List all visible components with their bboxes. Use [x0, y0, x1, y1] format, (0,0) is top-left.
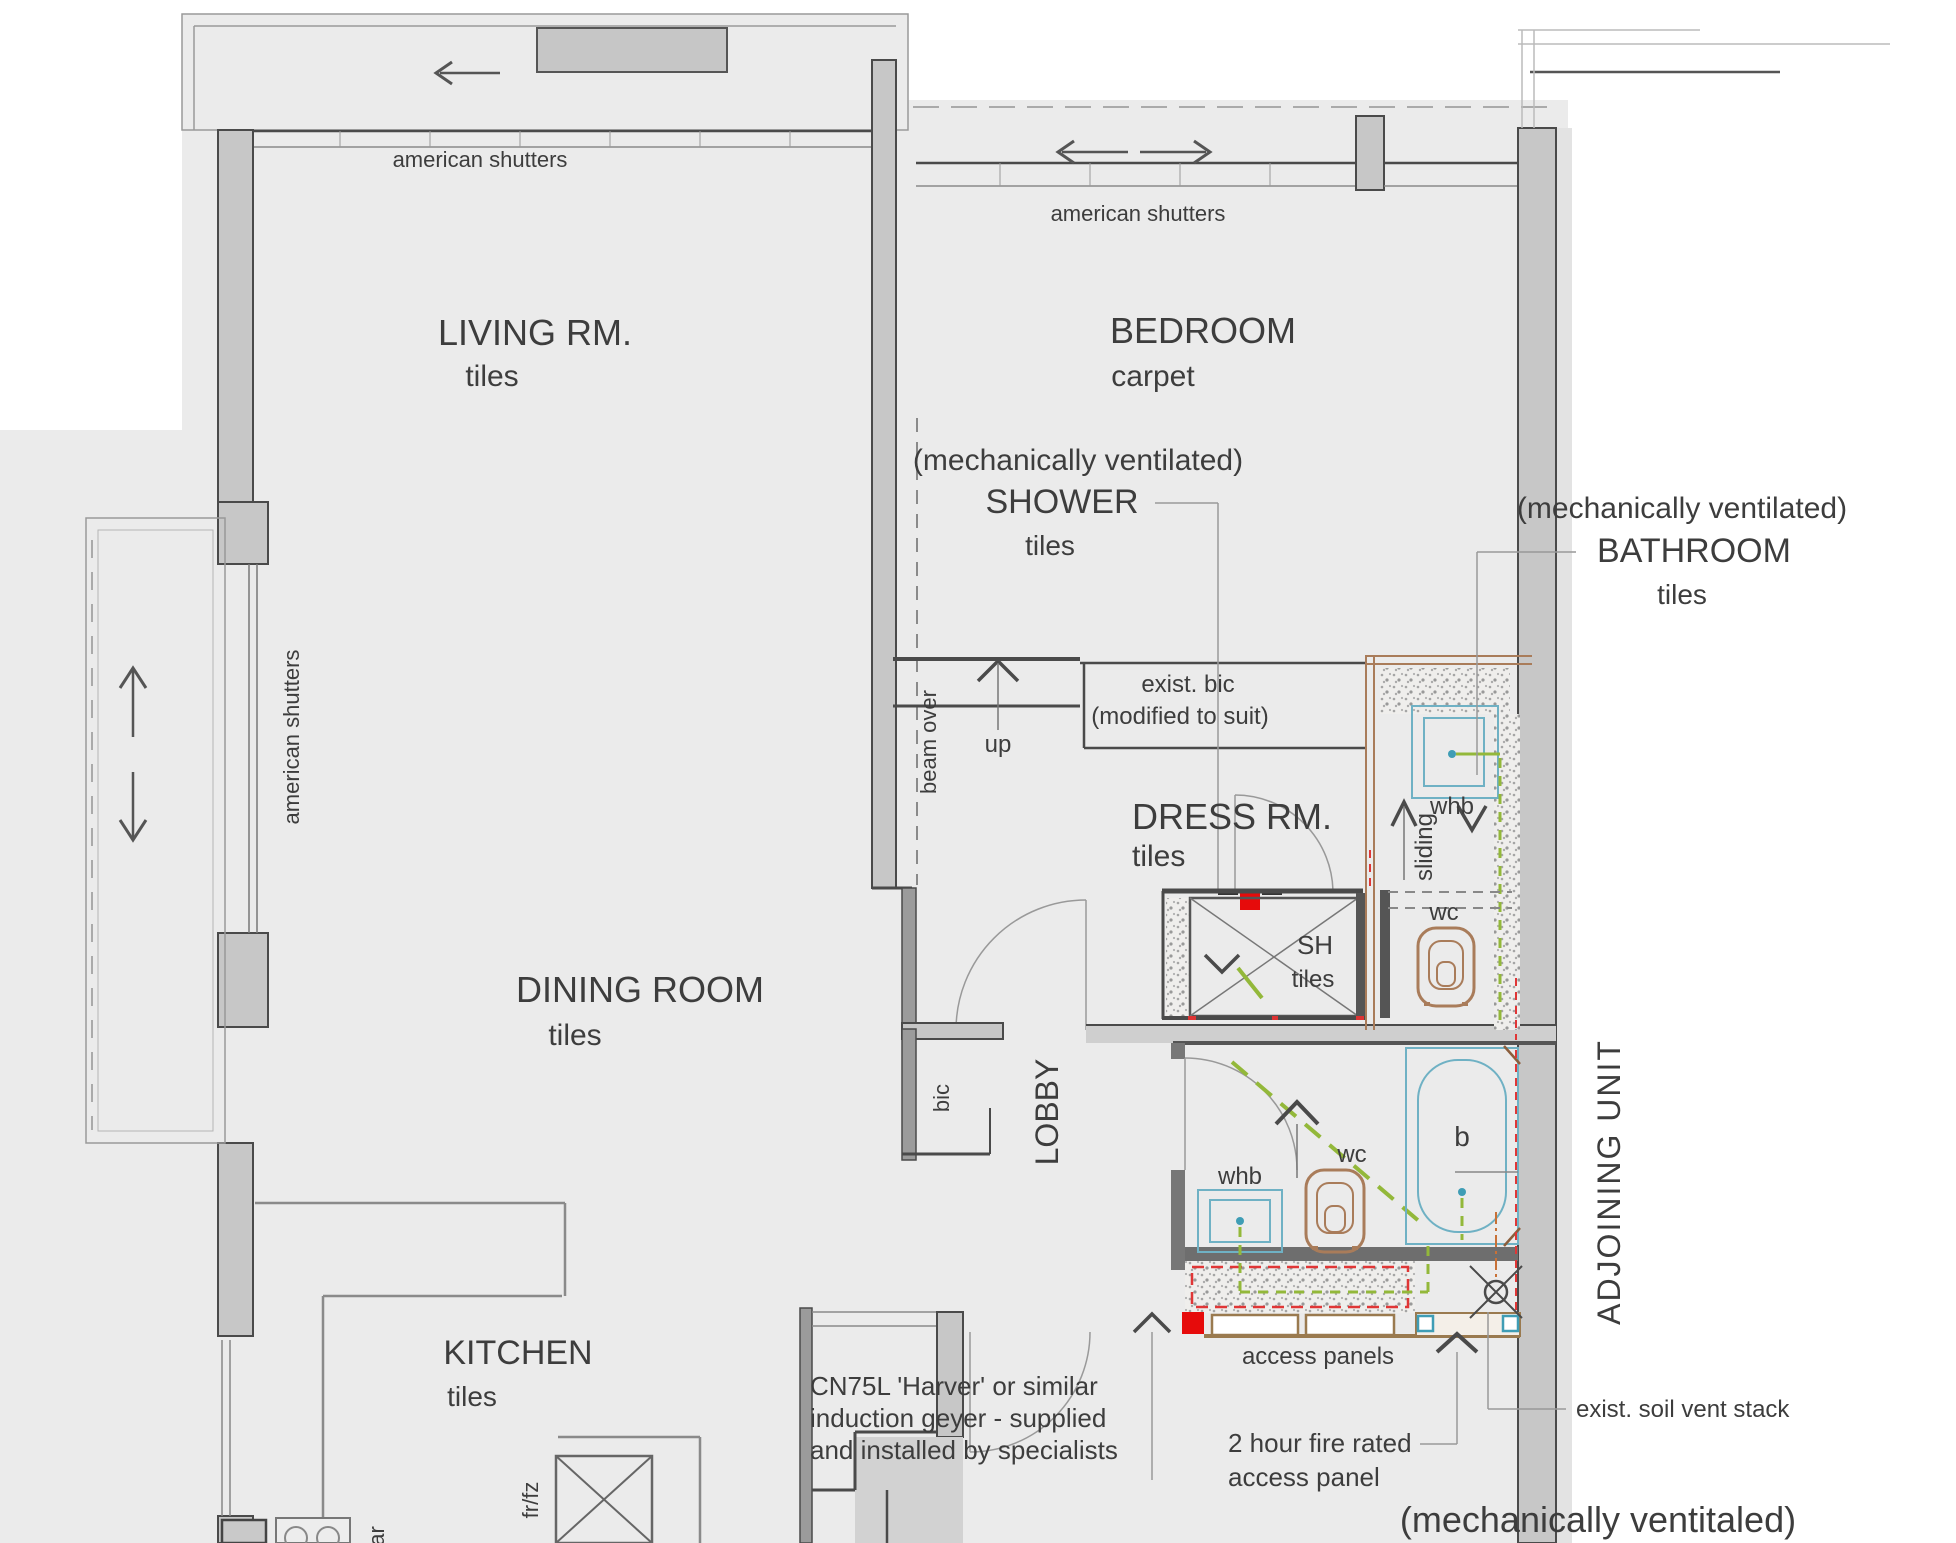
label-dining-room: DINING ROOM — [516, 969, 764, 1010]
label-lobby: LOBBY — [1029, 1059, 1065, 1166]
label-american-shutters-living: american shutters — [393, 147, 568, 172]
label-bath: b — [1454, 1121, 1470, 1152]
door-marker-red — [1182, 1312, 1204, 1334]
label-sh-finish: tiles — [1292, 966, 1335, 993]
label-geyser-2: induction geyer - supplied — [810, 1403, 1106, 1433]
label-dress-room: DRESS RM. — [1132, 796, 1332, 837]
label-whb-bathroom: whb — [1217, 1163, 1262, 1190]
label-dress-finish: tiles — [1132, 840, 1185, 873]
label-american-shutters-bedroom: american shutters — [1051, 201, 1226, 226]
label-bathroom-finish: tiles — [1657, 579, 1707, 610]
label-exist-bic: exist. bic — [1141, 671, 1234, 698]
label-living-finish: tiles — [465, 360, 518, 393]
access-panel — [1212, 1315, 1298, 1335]
label-access-panels: access panels — [1242, 1343, 1394, 1370]
label-shower-finish: tiles — [1025, 530, 1075, 561]
sink-unit — [222, 1520, 266, 1543]
label-kitchen: KITCHEN — [443, 1334, 592, 1372]
label-geyser-3: and installed by specialists — [810, 1435, 1118, 1465]
label-beam-over: beam over — [916, 690, 941, 794]
label-exist-bic-note: (modified to suit) — [1091, 703, 1268, 730]
shutter-panel — [537, 28, 727, 72]
label-bedroom: BEDROOM — [1110, 310, 1296, 351]
label-fridge-freezer: fr/fz — [518, 1482, 543, 1519]
label-soil-vent-stack: exist. soil vent stack — [1576, 1396, 1790, 1423]
floor-plan-page: american shutters LIVING RM. tiles ameri… — [0, 0, 1956, 1543]
label-dining-finish: tiles — [548, 1019, 601, 1052]
label-geyser-1: CN75L 'Harver' or similar — [810, 1371, 1098, 1401]
label-shower-vent-note: (mechanically ventilated) — [913, 444, 1243, 477]
label-fire-rated-2: access panel — [1228, 1462, 1380, 1492]
label-bic: bic — [929, 1084, 954, 1112]
label-living-room: LIVING RM. — [438, 312, 632, 353]
label-fire-rated-1: 2 hour fire rated — [1228, 1428, 1412, 1458]
label-adjoining-unit: ADJOINING UNIT — [1591, 1039, 1627, 1325]
label-stairs-up: up — [985, 731, 1012, 758]
label-mech-vent-bottom: (mechanically ventitaled) — [1400, 1499, 1796, 1540]
label-sliding-door: sliding — [1411, 813, 1438, 881]
floor-plan-drawing: american shutters LIVING RM. tiles ameri… — [0, 0, 1956, 1543]
label-kitchen-finish: tiles — [447, 1381, 497, 1412]
label-wc-bathroom: wc — [1336, 1141, 1366, 1168]
window-pier — [1356, 116, 1384, 190]
label-shower: SHOWER — [986, 483, 1139, 521]
label-bathroom-vent-note: (mechanically ventilated) — [1517, 492, 1847, 525]
access-panel — [1306, 1315, 1394, 1335]
door-marker-red — [1240, 891, 1260, 910]
label-appliance-fragment: ar — [364, 1526, 389, 1543]
label-bathroom: BATHROOM — [1597, 532, 1791, 570]
label-sh: SH — [1297, 930, 1333, 960]
label-american-shutters-dining: american shutters — [279, 650, 304, 825]
label-bedroom-finish: carpet — [1111, 360, 1195, 393]
label-wc-ensuite: wc — [1428, 899, 1458, 926]
